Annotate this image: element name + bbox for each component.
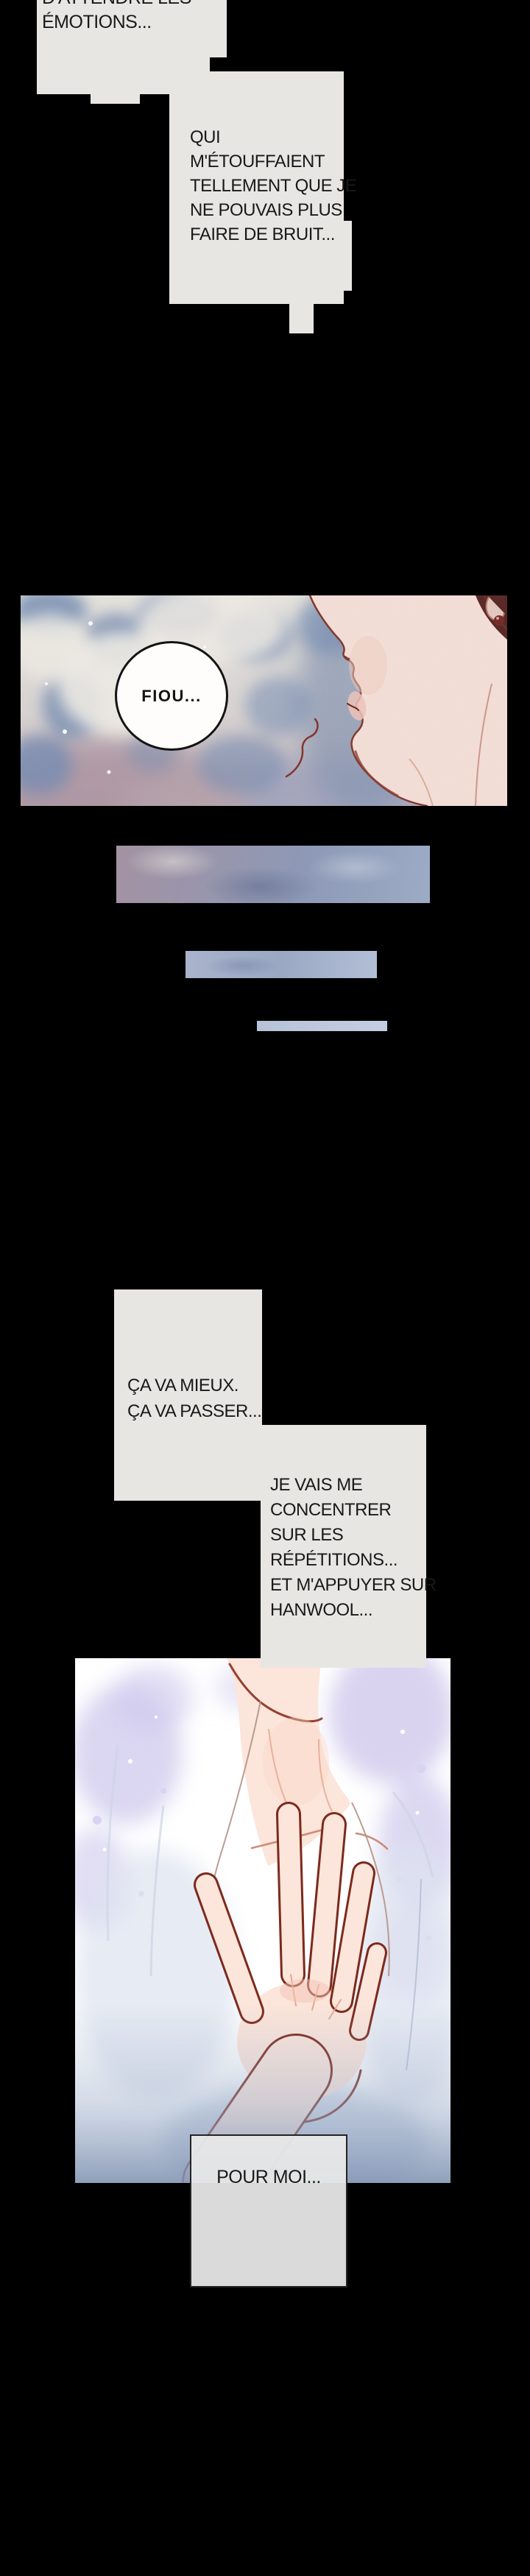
speech-bubble-2-tail <box>289 304 314 333</box>
caption-text: POUR MOI... <box>191 2136 346 2189</box>
speech-bubble-1-text: D'ATTENDRE LES ÉMOTIONS... <box>42 0 191 35</box>
speech-bubble-2-text: QUI M'ÉTOUFFAIENT TELLEMENT QUE JE NE PO… <box>190 125 356 247</box>
speech-bubble-3-text: ÇA VA MIEUX. ÇA VA PASSER... <box>127 1373 261 1424</box>
panel-echo-band-3 <box>257 1021 387 1031</box>
panel-2-illustration <box>75 1658 451 2183</box>
speech-bubble-4-text: JE VAIS ME CONCENTRER SUR LES RÉPÉTITION… <box>270 1473 437 1623</box>
panel-1-illustration <box>21 595 507 806</box>
fiou-balloon: FIOU... <box>115 641 228 751</box>
panel-1-grain <box>21 595 507 806</box>
panel-echo-band-2 <box>185 951 377 978</box>
caption-box: POUR MOI... <box>190 2134 347 2287</box>
speech-bubble-1-tail <box>91 94 140 104</box>
panel-echo-band-1 <box>116 846 430 903</box>
fiou-text: FIOU... <box>141 687 201 706</box>
webtoon-page: D'ATTENDRE LES ÉMOTIONS... QUI M'ÉTOUFFA… <box>0 0 530 2576</box>
